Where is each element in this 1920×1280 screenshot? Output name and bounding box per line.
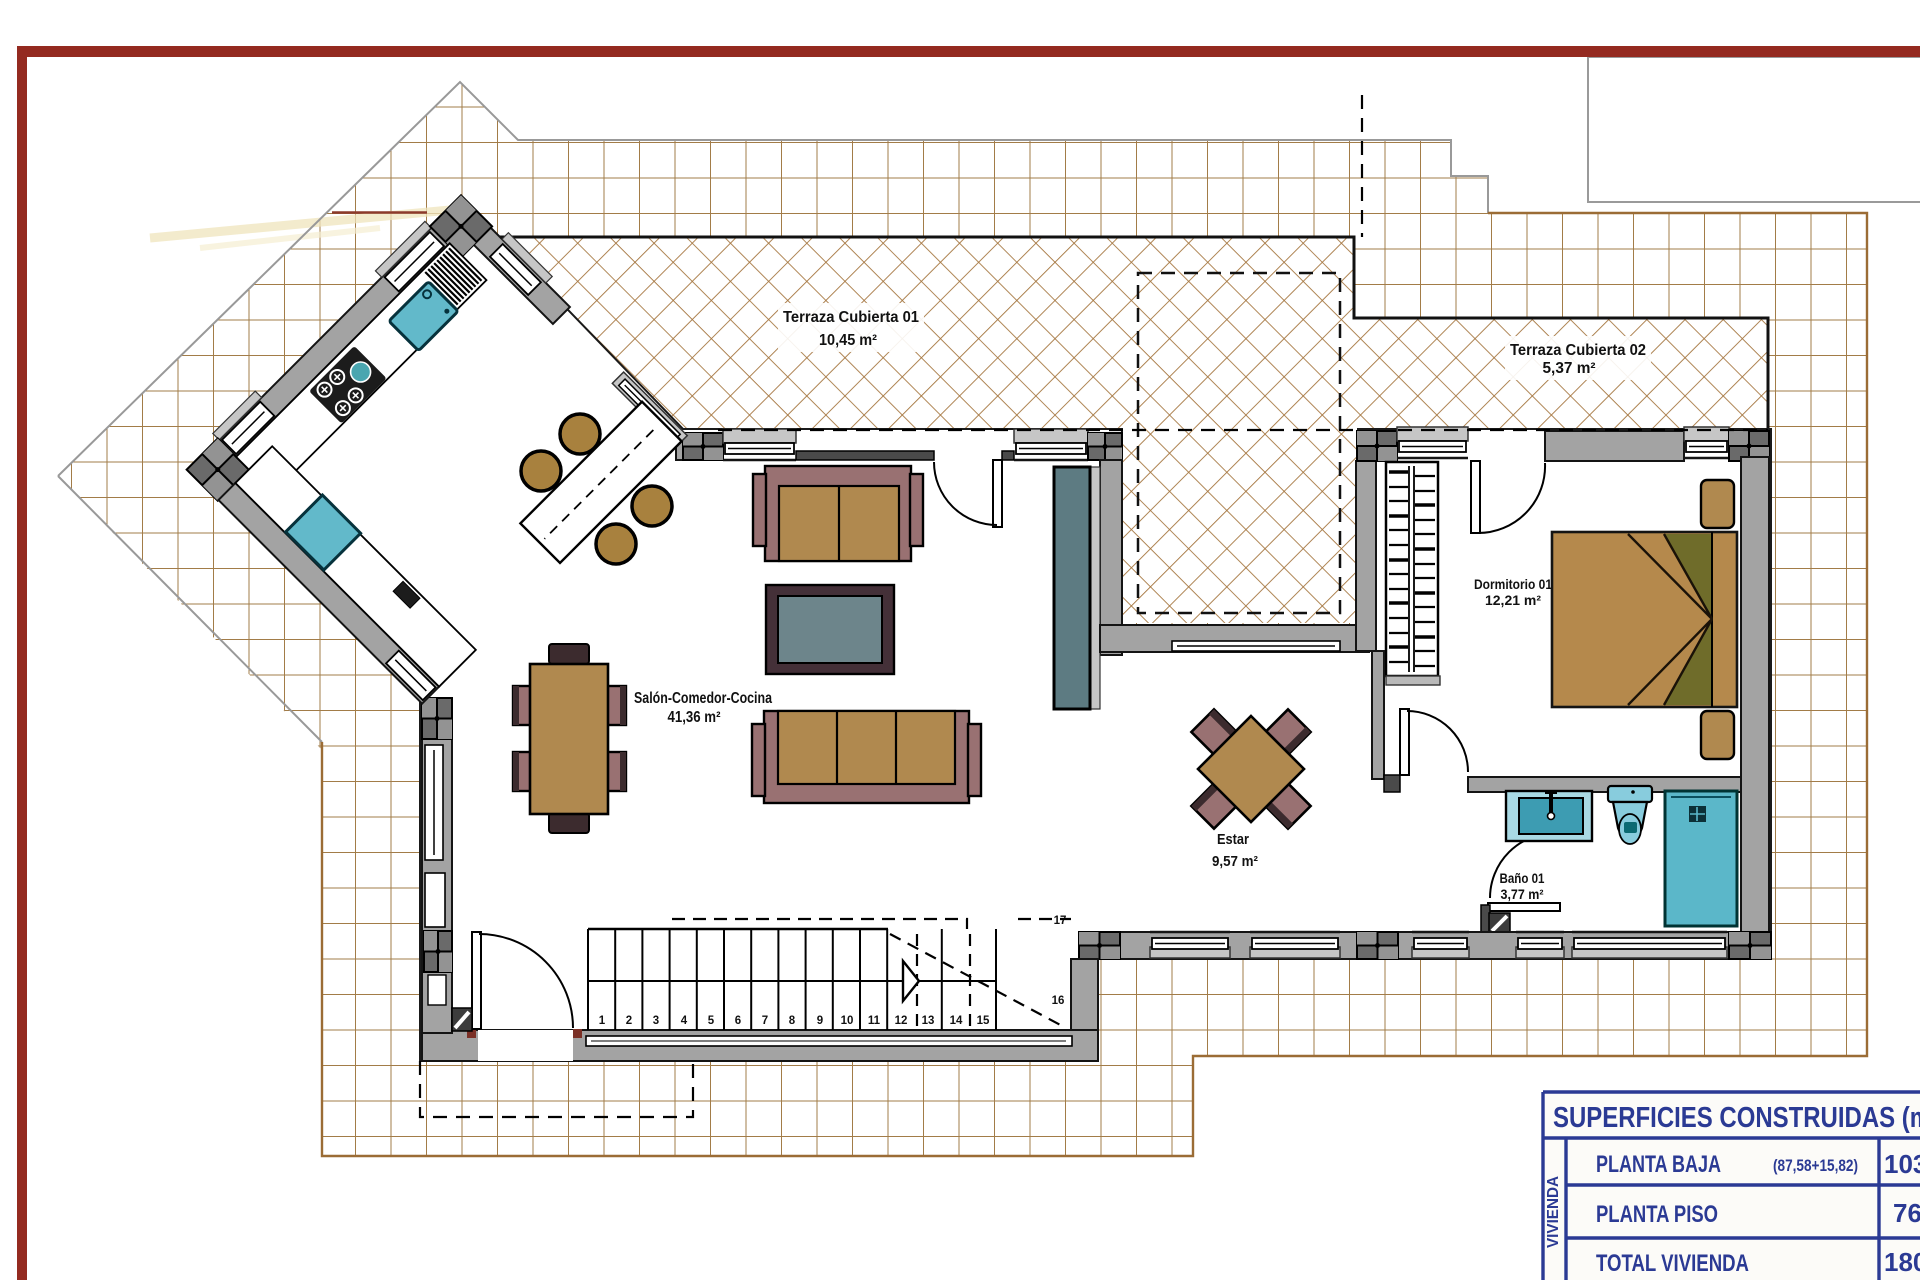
svg-text:1: 1 (599, 1015, 606, 1027)
svg-text:12,21 m²: 12,21 m² (1485, 592, 1541, 608)
svg-text:17: 17 (1054, 915, 1067, 927)
svg-text:103,4: 103,4 (1884, 1149, 1920, 1179)
svg-text:5,37 m²: 5,37 m² (1543, 360, 1596, 377)
svg-text:10,45 m²: 10,45 m² (819, 332, 877, 349)
svg-text:6: 6 (735, 1015, 741, 1027)
svg-text:Dormitorio 01: Dormitorio 01 (1474, 576, 1552, 592)
svg-text:Estar: Estar (1217, 832, 1249, 848)
svg-text:9: 9 (817, 1015, 823, 1027)
svg-text:TOTAL VIVIENDA: TOTAL VIVIENDA (1596, 1250, 1749, 1277)
svg-text:11: 11 (868, 1015, 881, 1027)
svg-text:13: 13 (922, 1015, 935, 1027)
svg-text:Salón-Comedor-Cocina: Salón-Comedor-Cocina (634, 690, 772, 707)
svg-text:16: 16 (1052, 995, 1065, 1007)
svg-text:3: 3 (653, 1015, 659, 1027)
svg-text:PLANTA PISO: PLANTA PISO (1596, 1201, 1718, 1228)
svg-text:7: 7 (762, 1015, 768, 1027)
svg-text:76,6: 76,6 (1893, 1198, 1920, 1228)
svg-text:12: 12 (895, 1015, 908, 1027)
svg-text:2: 2 (626, 1015, 632, 1027)
svg-text:41,36 m²: 41,36 m² (668, 709, 721, 726)
svg-text:3,77 m²: 3,77 m² (1501, 887, 1544, 902)
svg-text:5: 5 (708, 1015, 715, 1027)
svg-text:(87,58+15,82): (87,58+15,82) (1773, 1156, 1858, 1175)
svg-text:15: 15 (977, 1015, 990, 1027)
svg-text:SUPERFICIES CONSTRUIDAS (m²): SUPERFICIES CONSTRUIDAS (m²) (1553, 1102, 1920, 1134)
svg-text:8: 8 (789, 1015, 796, 1027)
svg-text:14: 14 (950, 1015, 963, 1027)
svg-text:10: 10 (841, 1015, 854, 1027)
svg-text:VIVIENDA: VIVIENDA (1545, 1176, 1562, 1248)
svg-text:4: 4 (681, 1015, 688, 1027)
svg-text:Baño 01: Baño 01 (1500, 871, 1545, 886)
svg-text:Terraza Cubierta 01: Terraza Cubierta 01 (783, 309, 919, 326)
svg-text:Terraza Cubierta 02: Terraza Cubierta 02 (1510, 342, 1646, 359)
svg-text:180,0: 180,0 (1884, 1247, 1920, 1277)
svg-text:9,57 m²: 9,57 m² (1212, 854, 1258, 870)
svg-text:PLANTA BAJA: PLANTA BAJA (1596, 1151, 1721, 1178)
